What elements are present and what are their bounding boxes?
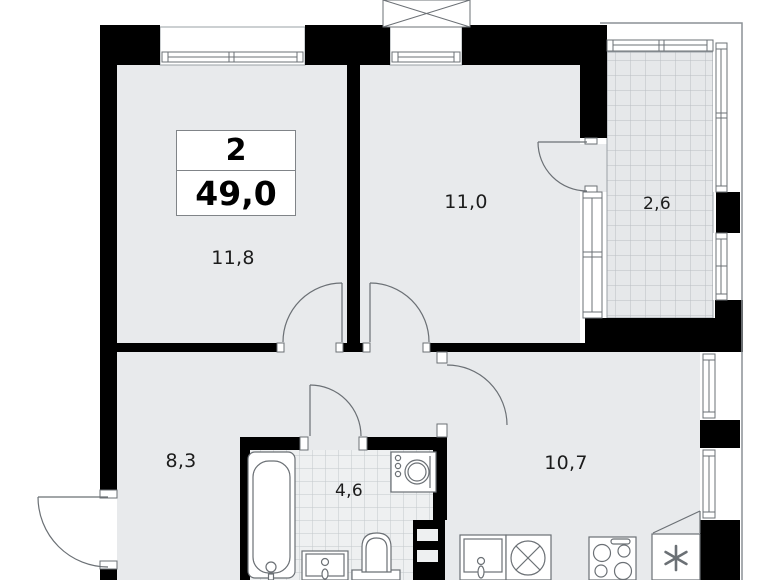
wall-right-pier-1 bbox=[700, 420, 740, 448]
unit-total-area: 49,0 bbox=[177, 171, 295, 215]
door-gap-kitchen bbox=[437, 363, 447, 425]
floor-plan: 2 49,0 11,8 11,0 2,6 8,3 4,6 10,7 bbox=[0, 0, 780, 580]
window-zone-bedroom bbox=[390, 27, 462, 65]
jamb bbox=[277, 343, 284, 352]
jamb bbox=[336, 343, 343, 352]
jamb bbox=[585, 138, 597, 144]
wall-left-upper bbox=[100, 25, 117, 490]
washing-machine-icon bbox=[391, 452, 436, 492]
wall-top-2 bbox=[305, 25, 390, 65]
door-gap-bathroom bbox=[306, 437, 361, 450]
wall-bath-top-right bbox=[361, 437, 447, 450]
floor-plan-drawing bbox=[0, 0, 780, 580]
glazing-balcony-top bbox=[607, 40, 713, 51]
vent-shaft bbox=[413, 520, 445, 580]
door-gap-living bbox=[277, 343, 343, 352]
wall-balcony-bottom bbox=[585, 318, 743, 352]
room-label-bathroom: 4,6 bbox=[335, 481, 363, 501]
shaft-box bbox=[383, 0, 470, 27]
window-zone-kitchen-a bbox=[700, 352, 742, 420]
window-zone-kitchen-b bbox=[700, 448, 742, 520]
unit-info-box: 2 49,0 bbox=[176, 130, 296, 216]
wall-top-1 bbox=[100, 25, 160, 65]
room-label-balcony: 2,6 bbox=[643, 194, 671, 214]
bathroom-sink-icon bbox=[302, 551, 348, 580]
vent-shaft-slot bbox=[417, 550, 438, 562]
room-label-kitchen: 10,7 bbox=[544, 452, 588, 474]
jamb bbox=[359, 437, 367, 450]
room-label-bedroom: 11,0 bbox=[444, 191, 488, 213]
unit-rooms-count: 2 bbox=[177, 131, 295, 171]
wall-top-3 bbox=[462, 25, 607, 65]
jamb bbox=[423, 343, 430, 352]
entrance-door bbox=[38, 497, 108, 567]
wall-room-divider bbox=[347, 65, 360, 352]
wall-bedroom-balcony bbox=[580, 65, 607, 138]
wall-hall-left bbox=[117, 343, 277, 352]
window-zone-living bbox=[160, 27, 305, 65]
wall-balcony-right-pier bbox=[716, 192, 740, 233]
jamb bbox=[437, 424, 447, 437]
balcony-tile-grid bbox=[607, 52, 713, 318]
room-label-living: 11,8 bbox=[211, 247, 255, 269]
jamb bbox=[437, 352, 447, 363]
vent-shaft-slot bbox=[417, 529, 438, 541]
jamb bbox=[300, 437, 308, 450]
bathtub-icon bbox=[248, 452, 295, 580]
wall-left-lower bbox=[100, 569, 117, 580]
wall-balcony-corner bbox=[715, 300, 743, 320]
stove-icon bbox=[589, 537, 636, 580]
jamb bbox=[100, 561, 117, 569]
room-label-hallway: 8,3 bbox=[165, 450, 196, 472]
wall-hall-right bbox=[429, 343, 585, 352]
door-gap-bedroom bbox=[363, 343, 429, 352]
wall-bath-top-left bbox=[240, 437, 306, 450]
jamb bbox=[363, 343, 370, 352]
kitchen-cabinet-icon bbox=[460, 535, 506, 580]
kitchen-sink-icon bbox=[506, 535, 551, 580]
wall-right-pier-2 bbox=[700, 520, 740, 580]
door-gap-balcony bbox=[580, 144, 607, 192]
